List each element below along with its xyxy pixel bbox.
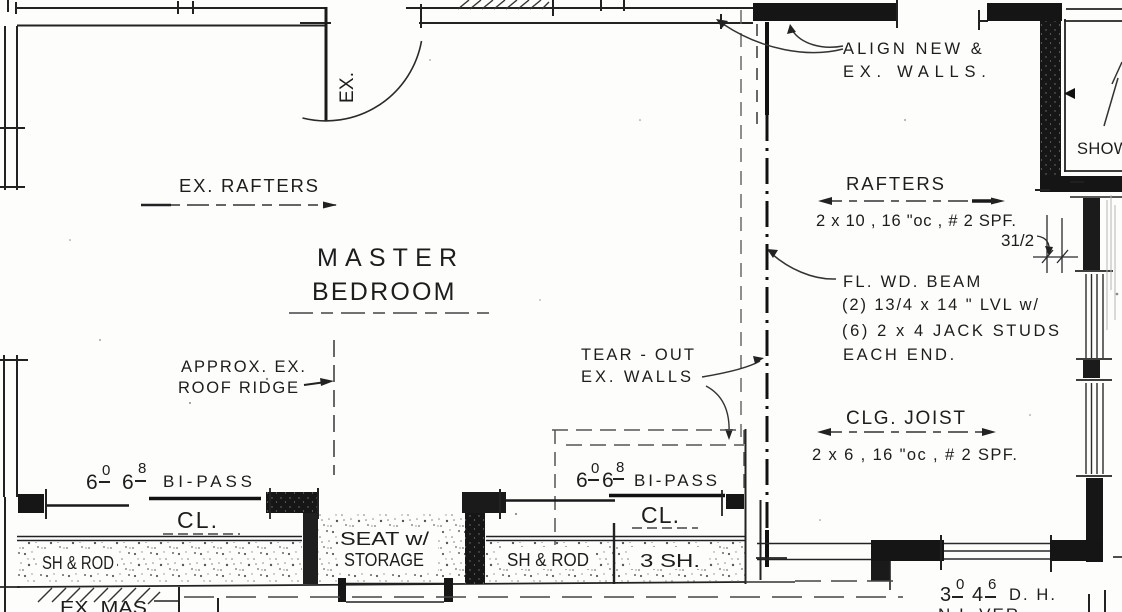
svg-text:SHOWER: SHOWER [1077, 140, 1122, 158]
svg-text:ALIGN NEW &: ALIGN NEW & [843, 40, 985, 58]
svg-text:ROOF RIDGE: ROOF RIDGE [178, 379, 300, 397]
svg-text:CL.: CL. [641, 502, 679, 528]
svg-text:CL.: CL. [177, 507, 217, 533]
svg-text:6: 6 [122, 471, 134, 494]
svg-text:SH & ROD: SH & ROD [42, 553, 114, 573]
svg-text:0: 0 [956, 576, 964, 593]
svg-text:BI-PASS: BI-PASS [163, 472, 254, 491]
svg-text:(6) 2 x 4 JACK STUDS: (6) 2 x 4 JACK STUDS [842, 322, 1059, 340]
svg-text:6: 6 [86, 471, 98, 494]
svg-text:EX. MAS: EX. MAS [60, 598, 147, 612]
svg-text:EX. WALLS.: EX. WALLS. [843, 63, 989, 81]
svg-text:TEAR - OUT: TEAR - OUT [581, 346, 697, 364]
svg-text:BEDROOM: BEDROOM [312, 278, 459, 306]
svg-text:SH & ROD: SH & ROD [507, 550, 589, 570]
svg-text:4: 4 [972, 584, 983, 606]
svg-text:EACH END.: EACH END. [843, 346, 956, 364]
svg-text:6: 6 [602, 469, 614, 492]
svg-text:2 x 6 , 16 "oc , # 2 SPF.: 2 x 6 , 16 "oc , # 2 SPF. [812, 446, 1017, 464]
svg-text:2 x 10 , 16 "oc , # 2 SPF.: 2 x 10 , 16 "oc , # 2 SPF. [816, 212, 1016, 230]
svg-text:STORAGE: STORAGE [344, 550, 424, 570]
svg-text:N.I. VER: N.I. VER [938, 605, 1020, 612]
svg-text:D. H.: D. H. [1009, 586, 1057, 604]
svg-text:EX.: EX. [337, 72, 358, 103]
svg-text:APPROX. EX.: APPROX. EX. [181, 358, 307, 376]
svg-text:6: 6 [988, 576, 996, 593]
svg-text:EX. RAFTERS: EX. RAFTERS [179, 175, 320, 196]
svg-text:EX. WALLS: EX. WALLS [581, 368, 694, 386]
svg-text:MASTER: MASTER [317, 244, 465, 272]
svg-text:(2) 13/4 x 14 " LVL w/: (2) 13/4 x 14 " LVL w/ [842, 296, 1038, 314]
svg-text:FL. WD. BEAM: FL. WD. BEAM [843, 273, 982, 291]
svg-text:RAFTERS: RAFTERS [846, 173, 946, 194]
svg-text:SEAT w/: SEAT w/ [340, 529, 429, 549]
svg-text:0: 0 [102, 462, 110, 479]
svg-text:0: 0 [591, 460, 599, 477]
svg-text:3 SH.: 3 SH. [640, 551, 700, 571]
svg-text:8: 8 [616, 459, 624, 476]
svg-text:CLG. JOIST: CLG. JOIST [846, 408, 967, 429]
svg-text:BI-PASS: BI-PASS [634, 471, 719, 490]
svg-text:3: 3 [940, 584, 951, 606]
svg-text:8: 8 [138, 460, 146, 477]
svg-text:6: 6 [576, 469, 588, 492]
svg-text:31/2: 31/2 [1001, 231, 1034, 250]
